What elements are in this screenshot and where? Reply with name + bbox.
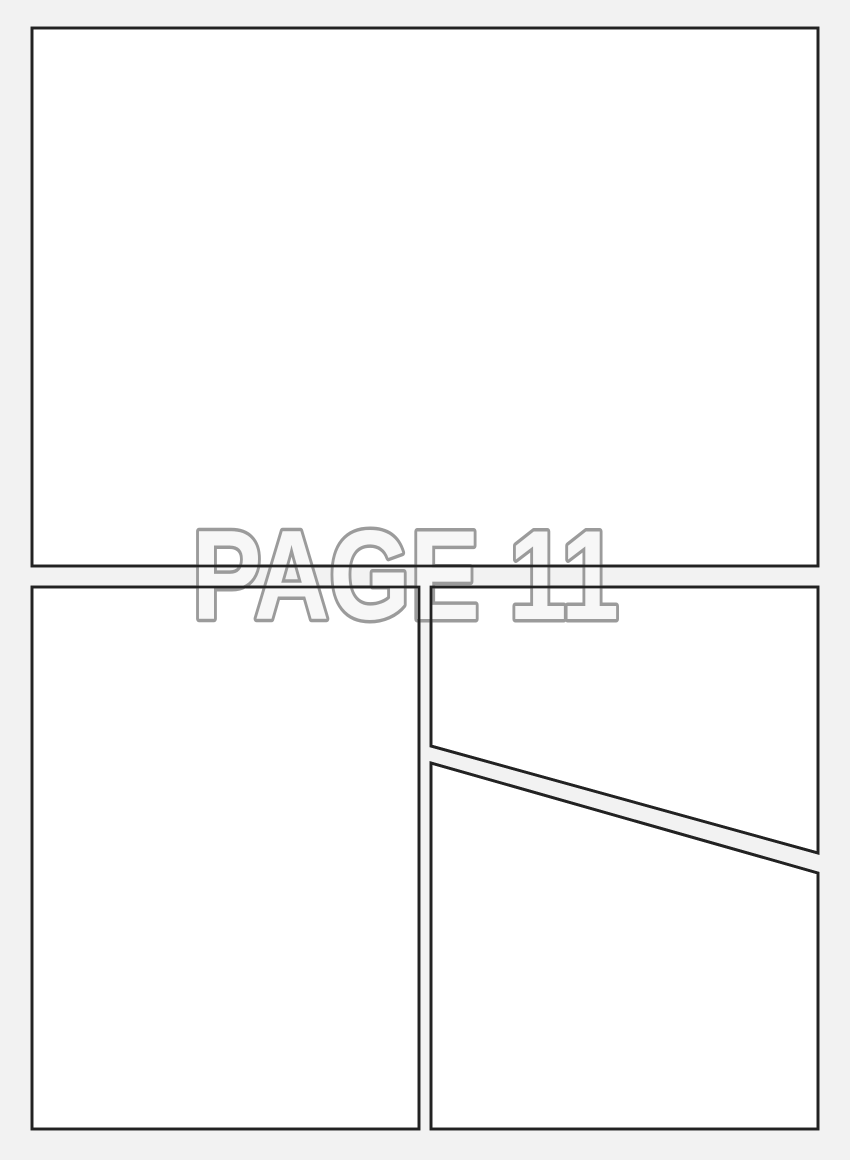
- page-number-watermark: PAGE 11: [192, 504, 619, 646]
- panel-bottom-left[interactable]: [32, 587, 419, 1129]
- panel-top[interactable]: [32, 28, 818, 566]
- comic-page-template: PAGE 11: [0, 0, 850, 1160]
- page-canvas: PAGE 11: [0, 0, 850, 1160]
